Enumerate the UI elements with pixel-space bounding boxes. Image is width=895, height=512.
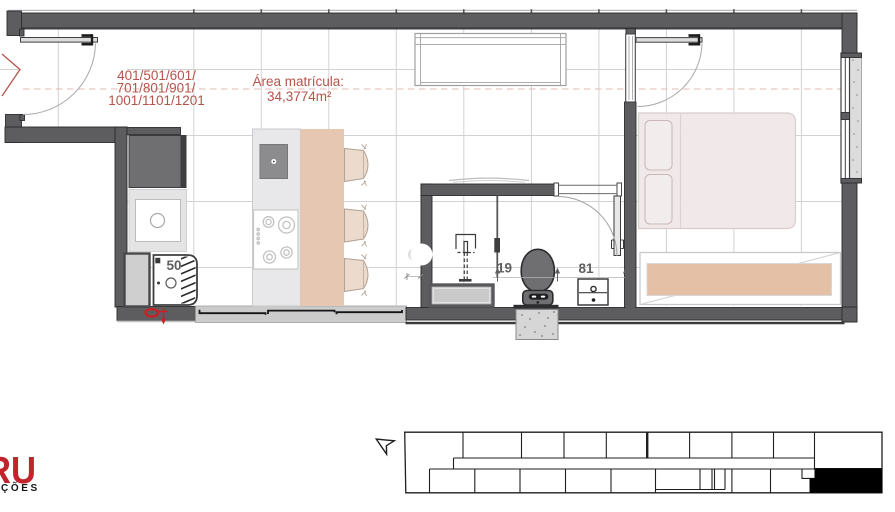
- svg-text:1001/1101/1201: 1001/1101/1201: [108, 93, 205, 108]
- svg-text:81: 81: [579, 261, 595, 276]
- svg-text:Área matrícula:: Área matrícula:: [253, 74, 345, 89]
- svg-text:ÇÕES: ÇÕES: [1, 481, 40, 494]
- svg-text:34,3774m²: 34,3774m²: [267, 89, 332, 104]
- svg-text:50: 50: [167, 258, 182, 273]
- svg-text:19: 19: [497, 261, 512, 276]
